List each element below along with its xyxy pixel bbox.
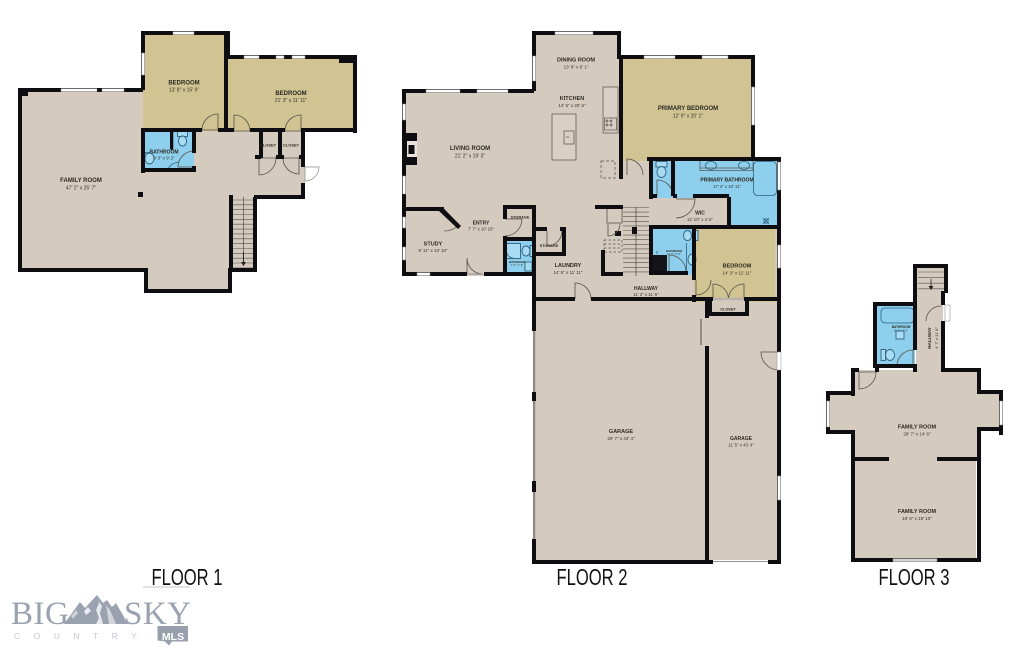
svg-text:CLOSET: CLOSET bbox=[720, 308, 736, 312]
svg-text:FAMILY ROOM: FAMILY ROOM bbox=[60, 178, 102, 184]
svg-text:FAMILY ROOM: FAMILY ROOM bbox=[898, 425, 937, 431]
svg-text:4' 7" x 11' 8": 4' 7" x 11' 8" bbox=[934, 327, 939, 349]
svg-text:BIG: BIG bbox=[11, 596, 69, 632]
svg-text:WIC: WIC bbox=[695, 211, 705, 217]
svg-text:PRIMARY BEDROOM: PRIMARY BEDROOM bbox=[658, 106, 718, 112]
svg-text:13' 8" x 8' 1": 13' 8" x 8' 1" bbox=[564, 65, 589, 70]
svg-text:DINING ROOM: DINING ROOM bbox=[557, 58, 595, 64]
svg-text:12' 10" x 4' 6": 12' 10" x 4' 6" bbox=[687, 217, 713, 222]
svg-text:9' 11" x 10' 10": 9' 11" x 10' 10" bbox=[418, 248, 448, 253]
svg-text:14' 3" x 11' 11": 14' 3" x 11' 11" bbox=[722, 271, 751, 276]
svg-text:LIVING ROOM: LIVING ROOM bbox=[450, 146, 490, 152]
svg-text:BEDROOM: BEDROOM bbox=[168, 81, 199, 87]
svg-text:FLOOR 1: FLOOR 1 bbox=[152, 564, 223, 590]
svg-text:10' 0" x 7' 6": 10' 0" x 7' 6" bbox=[667, 253, 681, 256]
svg-text:STORAGE: STORAGE bbox=[511, 216, 530, 220]
svg-text:CLOSET: CLOSET bbox=[260, 143, 277, 148]
svg-text:14' 5" x 11' 11": 14' 5" x 11' 11" bbox=[553, 270, 582, 275]
svg-text:FAMILY ROOM: FAMILY ROOM bbox=[898, 509, 937, 515]
svg-text:17' 4" x 10' 11": 17' 4" x 10' 11" bbox=[713, 184, 741, 189]
svg-text:29' 7" x 43' 4": 29' 7" x 43' 4" bbox=[607, 436, 635, 441]
svg-text:KITCHEN: KITCHEN bbox=[560, 96, 584, 102]
svg-text:11' 2" x 11' 6": 11' 2" x 11' 6" bbox=[633, 292, 659, 297]
svg-text:CLOSET: CLOSET bbox=[283, 143, 300, 148]
svg-text:GARAGE: GARAGE bbox=[730, 436, 753, 442]
svg-text:BEDROOM: BEDROOM bbox=[275, 91, 306, 97]
svg-text:BEDROOM: BEDROOM bbox=[723, 264, 752, 270]
svg-text:PRIMARY BATHROOM: PRIMARY BATHROOM bbox=[700, 178, 753, 184]
svg-text:COUNTRY: COUNTRY bbox=[14, 631, 150, 641]
svg-text:21' 2" x 19' 3": 21' 2" x 19' 3" bbox=[455, 154, 485, 160]
svg-text:FLOOR 3: FLOOR 3 bbox=[879, 564, 950, 590]
svg-text:LAUNDRY: LAUNDRY bbox=[555, 263, 582, 269]
svg-text:21' 3" x 11' 11": 21' 3" x 11' 11" bbox=[275, 98, 307, 104]
svg-text:13' 8" x 15' 9": 13' 8" x 15' 9" bbox=[169, 88, 199, 94]
svg-text:HALLWAY: HALLWAY bbox=[927, 327, 932, 349]
svg-text:7' 0" x 7' 5": 7' 0" x 7' 5" bbox=[511, 264, 523, 267]
svg-text:6' 2" x 7' 0": 6' 2" x 7' 0" bbox=[894, 329, 908, 333]
svg-text:MLS: MLS bbox=[162, 631, 184, 643]
svg-text:FLOOR 2: FLOOR 2 bbox=[557, 564, 628, 590]
svg-text:11' 5" x 43' 4": 11' 5" x 43' 4" bbox=[728, 443, 754, 448]
svg-text:28' 7" x 14' 6": 28' 7" x 14' 6" bbox=[903, 432, 931, 437]
svg-text:STORAGE: STORAGE bbox=[540, 244, 559, 248]
svg-text:STUDY: STUDY bbox=[424, 242, 443, 248]
svg-text:47' 2" x 25' 7": 47' 2" x 25' 7" bbox=[66, 186, 96, 192]
svg-text:8' 3" x 9' 2": 8' 3" x 9' 2" bbox=[153, 156, 175, 161]
svg-text:7' 7" x 10' 10": 7' 7" x 10' 10" bbox=[468, 227, 494, 232]
svg-text:14' 5" x 20' 6": 14' 5" x 20' 6" bbox=[558, 103, 586, 108]
svg-text:12' 9" x 20' 1": 12' 9" x 20' 1" bbox=[673, 114, 703, 120]
svg-text:GARAGE: GARAGE bbox=[609, 429, 633, 435]
svg-text:19' 9" x 19' 10": 19' 9" x 19' 10" bbox=[902, 516, 932, 521]
